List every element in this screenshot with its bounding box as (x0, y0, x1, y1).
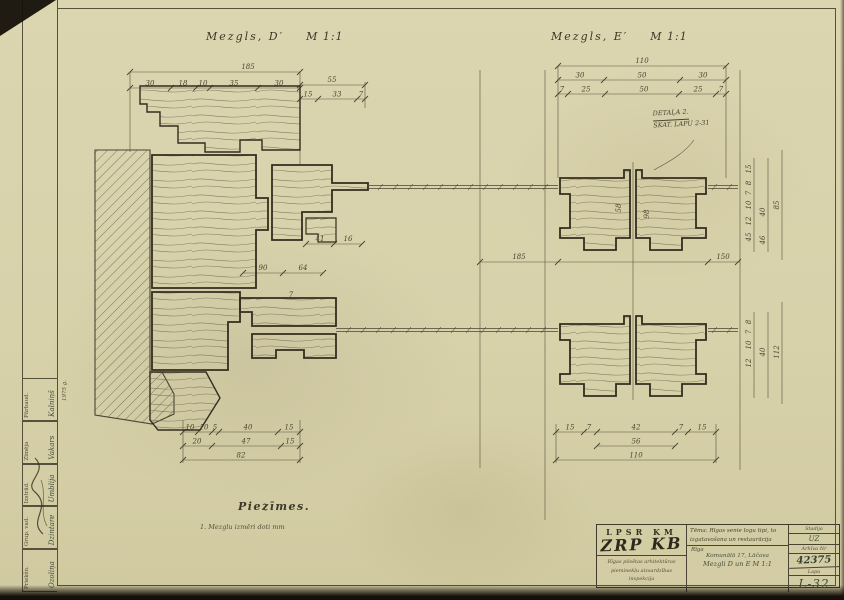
signature-table: Priekšn. Ozoliņa Grup. vad. Dzintare Izs… (22, 378, 57, 592)
handwritten-signature (23, 378, 57, 592)
paper-sheet: 185 30 18 10 35 30 55 15 33 7 110 30 50 … (0, 0, 844, 600)
scan-bottom-edge (0, 585, 844, 600)
scanned-technical-drawing: 185 30 18 10 35 30 55 15 33 7 110 30 50 … (0, 0, 844, 600)
scan-corner-shadow (0, 0, 56, 36)
border-frame (57, 8, 836, 586)
scan-right-edge (840, 0, 844, 600)
signature-strip: Priekšn. Ozoliņa Grup. vad. Dzintare Izs… (22, 378, 56, 592)
